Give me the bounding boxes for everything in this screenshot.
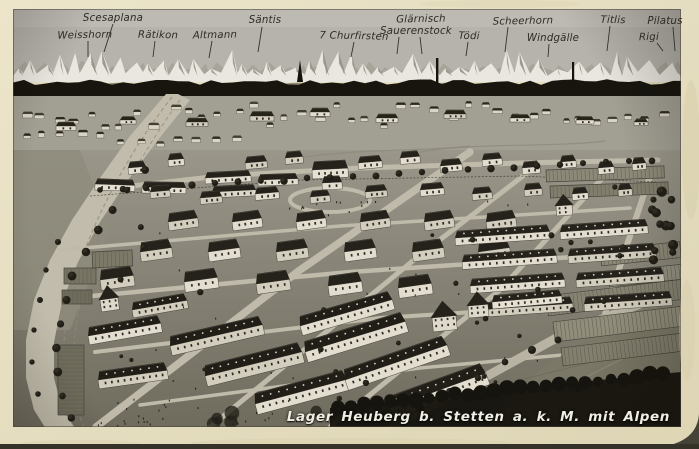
peak-label: 7 Churfirsten <box>319 30 388 42</box>
peak-label: Rigi <box>639 32 659 43</box>
peak-label: Glärnisch <box>396 13 446 25</box>
peak-label: Pilatus <box>647 16 683 27</box>
peak-label: Windgälle <box>527 33 579 44</box>
peak-label: Sauerenstock <box>380 26 453 37</box>
peak-label: Tödi <box>458 31 480 42</box>
postcard-image: WeisshornScesaplanaRätikonAltmannSäntis7… <box>0 0 699 449</box>
peak-label: Scheerhorn <box>493 15 554 27</box>
postcard: WeisshornScesaplanaRätikonAltmannSäntis7… <box>0 0 699 449</box>
photo-scene <box>13 9 699 449</box>
peak-label: Weisshorn <box>57 29 112 41</box>
peak-label: Titlis <box>600 15 626 27</box>
peak-label: Säntis <box>249 15 282 26</box>
peak-label: Scesaplana <box>83 13 143 24</box>
peak-label: Altmann <box>192 30 238 42</box>
peak-label: Rätikon <box>138 30 178 42</box>
